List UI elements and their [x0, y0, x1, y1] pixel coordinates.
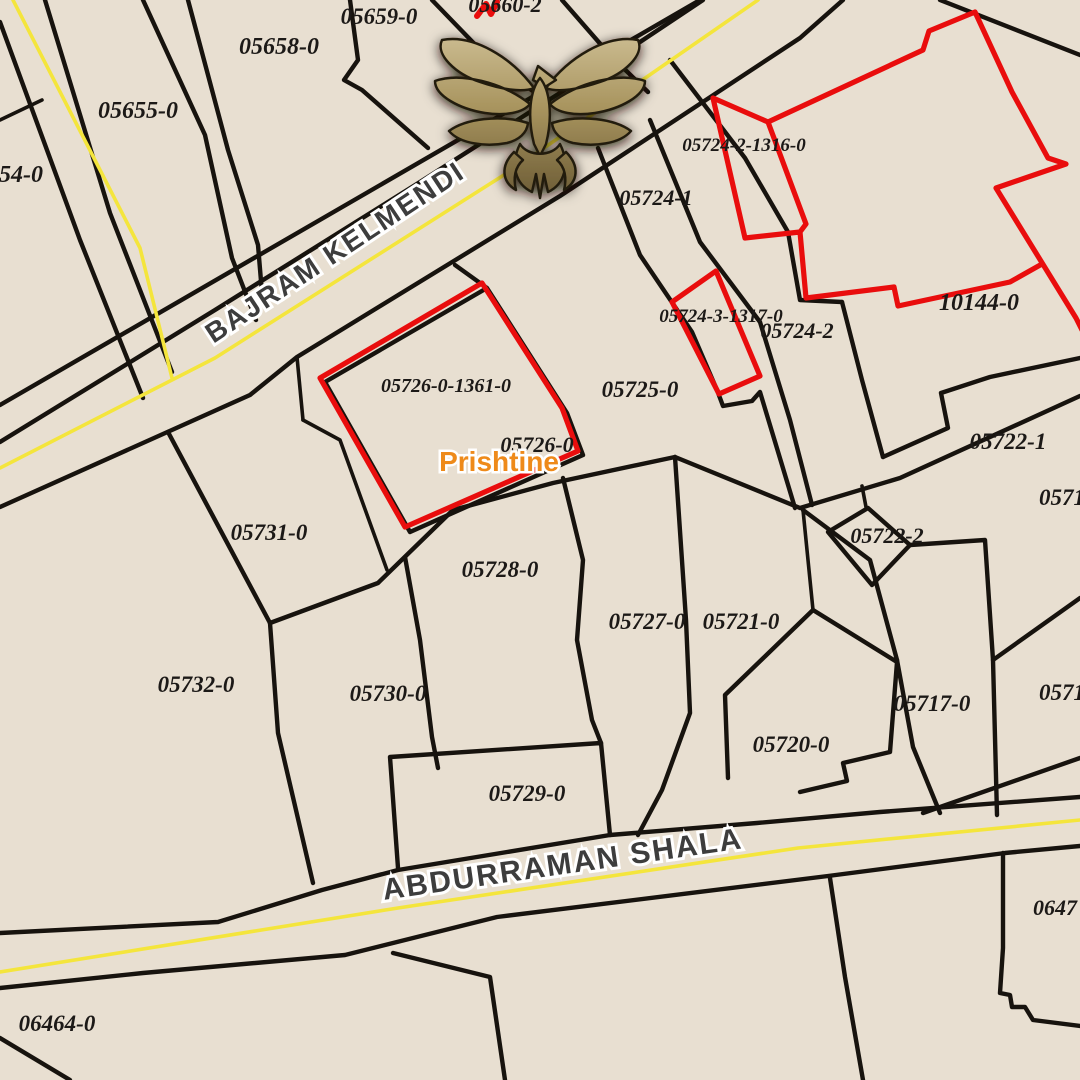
parcel-label: 05724-2: [760, 318, 833, 343]
place-name-label: Prishtine: [439, 446, 559, 477]
parcel-label: 05724-2-1316-0: [682, 135, 806, 156]
parcel-label: 05727-0: [609, 609, 686, 634]
cadastral-map-canvas[interactable]: 05660-205659-005658-005655-054-005724-2-…: [0, 0, 1080, 1080]
parcel-label: 05659-0: [341, 4, 418, 29]
parcel-label: 05730-0: [350, 681, 427, 706]
parcel-label: 05717-0: [894, 691, 971, 716]
parcel-label: 05720-0: [753, 732, 830, 757]
parcel-label: 0571: [1039, 680, 1080, 705]
parcel-label: 05724-1: [619, 185, 692, 210]
parcel-label: 05721-0: [703, 609, 780, 634]
parcel-label: 05728-0: [462, 557, 539, 582]
parcel-label: 05726-0-1361-0: [381, 375, 511, 397]
parcel-label: 05722-1: [970, 429, 1047, 454]
parcel-label: 05658-0: [239, 34, 319, 60]
parcel-label: 05731-0: [231, 520, 308, 545]
parcel-label: 10144-0: [939, 290, 1019, 316]
parcel-label: 05729-0: [489, 781, 566, 806]
parcel-label: 54-0: [0, 162, 43, 188]
parcel-label: 06464-0: [19, 1011, 96, 1036]
parcel-label: 05660-2: [468, 0, 541, 17]
parcel-label: 05722-2: [850, 523, 923, 548]
parcel-label: 0647: [1033, 895, 1078, 920]
parcel-label: 05655-0: [98, 98, 178, 124]
parcel-label: 05725-0: [602, 377, 679, 402]
parcel-label: 0571: [1039, 485, 1080, 510]
parcel-label: 05732-0: [158, 672, 235, 697]
cadastral-map: 05660-205659-005658-005655-054-005724-2-…: [0, 0, 1080, 1080]
